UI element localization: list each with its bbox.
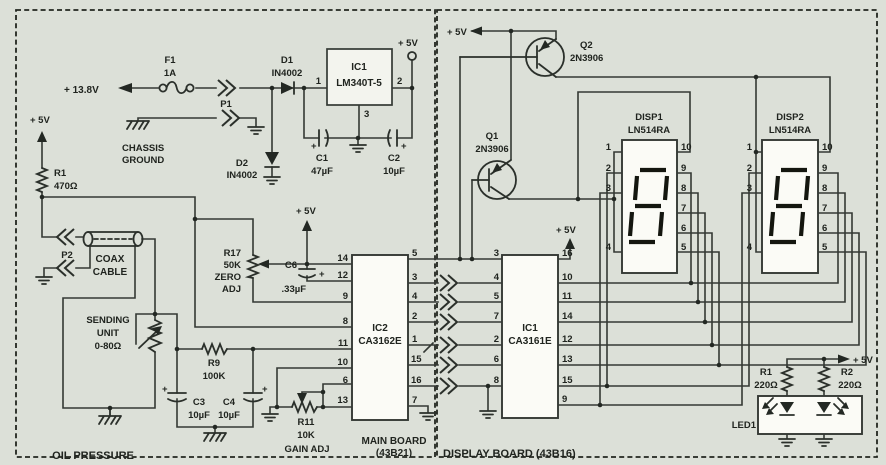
ic2-lpin-10: 10	[337, 357, 348, 368]
ic2-rpin-4: 4	[412, 291, 418, 302]
board-connector-icons	[440, 275, 457, 394]
p2-ref: P2	[61, 250, 73, 261]
ic2-lpin-8: 8	[343, 316, 348, 327]
sender-line2: UNIT	[97, 328, 119, 339]
r17-adj2: ADJ	[222, 284, 241, 295]
sender-line1: SENDING	[86, 315, 129, 326]
d1-ref: D1	[281, 55, 294, 66]
board-main: + 13.8V F1 1A P1 D1 IN4002 IC1 LM340T-5 …	[30, 38, 502, 462]
p2-connector-icon	[57, 229, 74, 245]
oil-pressure-gauge-schematic: + 13.8V F1 1A P1 D1 IN4002 IC1 LM340T-5 …	[0, 0, 886, 465]
ic2-rpin-15: 15	[411, 354, 422, 365]
ic2-rpin-7: 7	[412, 395, 417, 406]
c3-ref: C3	[193, 397, 205, 408]
v5-terminal	[408, 52, 416, 60]
v5-out-label: + 5V	[398, 38, 418, 49]
reg-pin2: 2	[397, 76, 402, 87]
d2-val: IN4002	[227, 170, 258, 181]
r9-ref: R9	[208, 358, 220, 369]
disp1-pin7: 7	[681, 203, 686, 214]
ic2-lpin-9: 9	[343, 291, 348, 302]
ic1d-rpin-13: 13	[562, 354, 573, 365]
led1-ref: LED1	[732, 420, 757, 431]
r17-adj1: ZERO	[215, 272, 241, 283]
disp1-pin10: 10	[681, 142, 692, 153]
led-5v-label: + 5V	[853, 355, 873, 366]
disp2-pin2: 2	[747, 163, 752, 174]
disp2-ref: DISP2	[776, 112, 803, 123]
r1-resistor-symbol	[37, 168, 47, 192]
coax-cable-symbol	[84, 232, 143, 246]
ic1d-lpin-3: 3	[494, 248, 499, 259]
ic1d-5v-label: + 5V	[556, 225, 576, 236]
c3c4-ground-icon	[204, 433, 226, 441]
r11-val: 10K	[297, 430, 315, 441]
r1d-val: 220Ω	[754, 380, 778, 391]
p1-ref: P1	[220, 99, 232, 110]
r1m-ref: R1	[54, 168, 67, 179]
ic1d-lpin-2: 2	[494, 334, 499, 345]
diode-d2-symbol	[265, 152, 279, 167]
c4-ref: C4	[223, 397, 236, 408]
ic2-rpin-3: 3	[412, 272, 417, 283]
ic1-regulator-box	[327, 49, 392, 105]
ic2-lpin-11: 11	[338, 338, 349, 349]
r17-pot-symbol	[248, 255, 258, 278]
disp1-pin5: 5	[681, 242, 687, 253]
c6-plus: +	[319, 269, 325, 280]
ic2-rpin-5: 5	[412, 248, 418, 259]
q2-val: 2N3906	[570, 53, 603, 64]
reg-pin1: 1	[316, 76, 322, 87]
r1m-val: 470Ω	[54, 181, 78, 192]
disp1-pin2: 2	[606, 163, 611, 174]
diode-d1-symbol	[281, 82, 294, 94]
c3-val: 10µF	[188, 410, 210, 421]
c2-ref: C2	[388, 153, 400, 164]
d1-val: IN4002	[272, 68, 303, 79]
disp1-pin3: 3	[606, 183, 611, 194]
c3-plus: +	[162, 384, 168, 395]
c6-5v-label: + 5V	[296, 206, 316, 217]
ic2-lpin-14: 14	[337, 253, 348, 264]
r1-5v-label: + 5V	[30, 115, 50, 126]
ic2-lpin-12: 12	[337, 270, 348, 281]
ic1d-rpin-15: 15	[562, 375, 573, 386]
disp2-pin6: 6	[822, 223, 827, 234]
r11-pot-symbol	[292, 402, 317, 412]
coax-line2: CABLE	[93, 267, 128, 278]
disp2-pin10: 10	[822, 142, 833, 153]
ic1d-lpin-4: 4	[494, 272, 500, 283]
ic2-ref: IC2	[372, 323, 388, 334]
c6-val: .33µF	[282, 284, 307, 295]
chassis-line1: CHASSIS	[122, 143, 164, 154]
r9-val: 100K	[203, 371, 226, 382]
c2-plus: +	[401, 141, 407, 152]
ic1d-rpin-11: 11	[562, 291, 573, 302]
ic2-val: CA3162E	[358, 336, 402, 347]
disp2-val: LN514RA	[769, 125, 811, 136]
rail-5v-label: + 5V	[447, 27, 467, 38]
r2d-resistor-symbol	[819, 367, 829, 391]
c1-plus: +	[311, 141, 317, 152]
c6-ref: C6	[285, 260, 297, 271]
r2d-ref: R2	[841, 367, 853, 378]
main-wires	[42, 57, 502, 433]
f1-val: 1A	[164, 68, 176, 79]
p1-return-connector-icon	[222, 110, 239, 126]
r17-wiper-arrowhead	[258, 260, 269, 269]
led-5v-arrowhead	[838, 355, 850, 364]
q2-transistor-symbol	[460, 38, 564, 77]
rail-5v-arrowhead	[470, 27, 482, 36]
disp2-pin7: 7	[822, 203, 827, 214]
ic2-rpin-16: 16	[411, 375, 422, 386]
disp1-pin6: 6	[681, 223, 686, 234]
main-board-label: MAIN BOARD	[362, 436, 427, 447]
ic1d-rpin-10: 10	[562, 272, 573, 283]
display-board-label: DISPLAY BOARD (43B16)	[443, 448, 576, 460]
ic2-lpin-6: 6	[343, 375, 348, 386]
reg-val: LM340T-5	[336, 78, 382, 89]
disp2-pin8: 8	[822, 183, 827, 194]
oil-pressure-label: OIL PRESSURE	[52, 450, 134, 462]
c4-plus: +	[262, 384, 268, 395]
r9-resistor-symbol	[202, 344, 227, 354]
c2-val: 10µF	[383, 166, 405, 177]
ic1d-rpin-12: 12	[562, 334, 573, 345]
c4-val: 10µF	[218, 410, 240, 421]
ic1d-lpin-8: 8	[494, 375, 499, 386]
r17-val: 50K	[224, 260, 242, 271]
ic2-rpin-2: 2	[412, 311, 417, 322]
r11-ref: R11	[298, 417, 316, 428]
fuse-f1-symbol	[159, 82, 193, 93]
sender-line3: 0-80Ω	[95, 341, 122, 352]
c1-val: 47µF	[311, 166, 333, 177]
disp2-pin5: 5	[822, 242, 828, 253]
q2-ref: Q2	[580, 40, 593, 51]
disp2-pin9: 9	[822, 163, 827, 174]
coax-line1: COAX	[96, 254, 125, 265]
q1-transistor-symbol	[472, 160, 516, 199]
reg-pin3: 3	[364, 109, 369, 120]
c1-ref: C1	[316, 153, 329, 164]
ic2-rpin-1: 1	[412, 334, 418, 345]
q1-val: 2N3906	[475, 144, 508, 155]
disp1-pin8: 8	[681, 183, 686, 194]
disp2-pin4: 4	[747, 242, 753, 253]
p1-connector-icon	[218, 80, 235, 96]
chassis-ground-icon	[127, 121, 149, 129]
vin-arrowhead	[118, 83, 132, 93]
sender-ground-icon	[99, 408, 121, 424]
reg-ref: IC1	[351, 62, 367, 73]
ic1d-lpin-6: 6	[494, 354, 499, 365]
disp1-pin9: 9	[681, 163, 686, 174]
disp2-pin3: 3	[747, 183, 752, 194]
led1-box	[758, 396, 862, 434]
d2-ref: D2	[236, 158, 248, 169]
ic1d-rpin-9: 9	[562, 394, 567, 405]
vin-label: + 13.8V	[64, 85, 99, 96]
r1d-resistor-symbol	[782, 367, 792, 391]
ic2-lpin-13: 13	[337, 395, 348, 406]
disp2-pin1: 1	[747, 142, 753, 153]
r11-adj: GAIN ADJ	[284, 444, 329, 455]
r17-ref: R17	[224, 248, 241, 259]
chassis-line2: GROUND	[122, 155, 164, 166]
ic1d-rpin-14: 14	[562, 311, 573, 322]
ic1d-lpin-5: 5	[494, 291, 500, 302]
p2-return-connector-icon	[57, 260, 74, 276]
board-display: + 5V Q2 2N3906 Q1 2N3906 IC1 CA3161E + 5…	[443, 27, 873, 461]
r1-5v-arrowhead	[37, 131, 47, 142]
disp1-val: LN514RA	[628, 125, 670, 136]
ic1d-rpin-16: 16	[562, 248, 573, 259]
disp1-pin1: 1	[606, 142, 612, 153]
ic1d-ref: IC1	[522, 323, 538, 334]
f1-ref: F1	[164, 55, 176, 66]
disp1-ref: DISP1	[635, 112, 663, 123]
r2d-val: 220Ω	[838, 380, 862, 391]
q1-ref: Q1	[486, 131, 499, 142]
c6-5v-arrowhead	[302, 220, 312, 231]
ic1d-val: CA3161E	[508, 336, 552, 347]
schematic-page: + 13.8V F1 1A P1 D1 IN4002 IC1 LM340T-5 …	[0, 0, 886, 465]
disp1-pin4: 4	[606, 242, 612, 253]
r1d-ref: R1	[760, 367, 773, 378]
ic1d-lpin-7: 7	[494, 311, 499, 322]
main-board-id: (43B21)	[376, 448, 412, 459]
